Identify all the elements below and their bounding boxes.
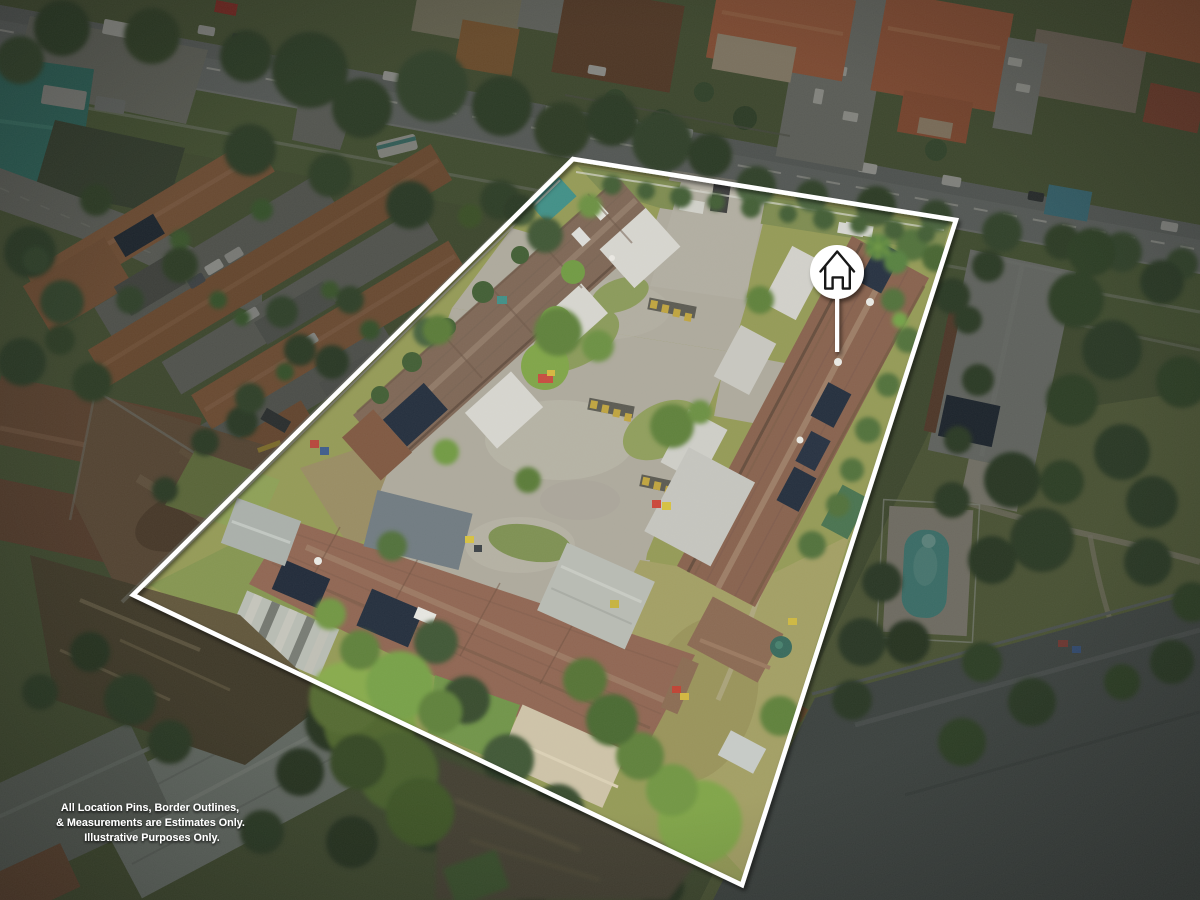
svg-text:& Measurements are Estimates O: & Measurements are Estimates Only.	[56, 817, 245, 829]
svg-text:Illustrative Purposes Only.: Illustrative Purposes Only.	[84, 832, 219, 844]
svg-text:All Location Pins, Border Outl: All Location Pins, Border Outlines,	[61, 802, 239, 814]
